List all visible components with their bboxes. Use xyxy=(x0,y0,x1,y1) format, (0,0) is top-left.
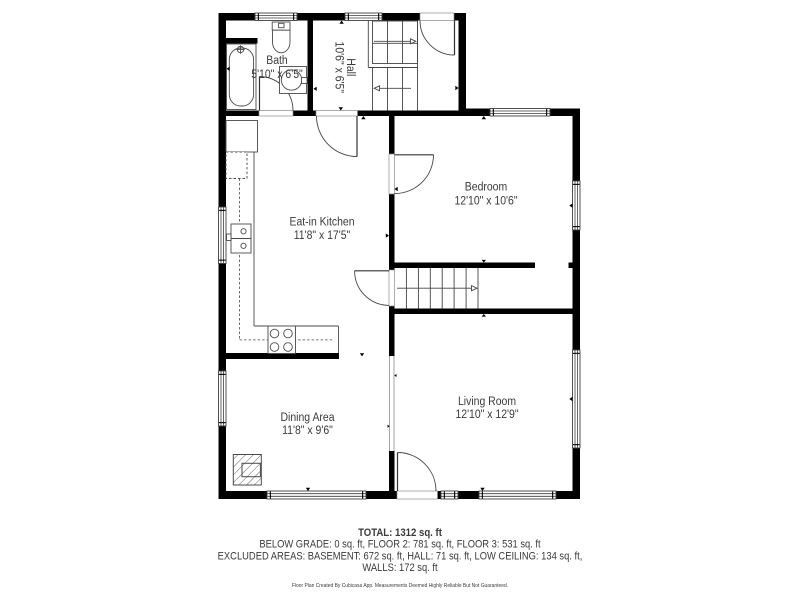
svg-text:Bedroom: Bedroom xyxy=(465,181,507,194)
svg-text:Eat-in Kitchen: Eat-in Kitchen xyxy=(289,216,354,229)
svg-text:Bath: Bath xyxy=(266,54,287,67)
svg-text:5'10" x 6'5": 5'10" x 6'5" xyxy=(251,68,302,81)
svg-text:Living Room: Living Room xyxy=(458,395,516,408)
svg-text:12'10" x 12'9": 12'10" x 12'9" xyxy=(455,408,518,421)
svg-text:Dining Area: Dining Area xyxy=(280,411,335,424)
svg-text:10'6" x 6'5": 10'6" x 6'5" xyxy=(332,42,345,93)
svg-text:12'10" x 10'6": 12'10" x 10'6" xyxy=(454,195,517,208)
svg-text:11'8" x 9'6": 11'8" x 9'6" xyxy=(282,424,333,437)
svg-text:BELOW GRADE: 0 sq. ft, FLOOR 2: BELOW GRADE: 0 sq. ft, FLOOR 2: 781 sq. … xyxy=(259,539,540,551)
svg-text:EXCLUDED AREAS: BASEMENT: 672: EXCLUDED AREAS: BASEMENT: 672 sq. ft, HA… xyxy=(218,551,583,563)
svg-text:TOTAL: 1312 sq. ft: TOTAL: 1312 sq. ft xyxy=(358,527,442,539)
svg-text:11'8" x 17'5": 11'8" x 17'5" xyxy=(294,229,351,242)
svg-text:Floor Plan Created By Cubicasa: Floor Plan Created By Cubicasa App. Meas… xyxy=(292,583,508,589)
svg-text:WALLS: 172 sq. ft: WALLS: 172 sq. ft xyxy=(362,563,437,575)
